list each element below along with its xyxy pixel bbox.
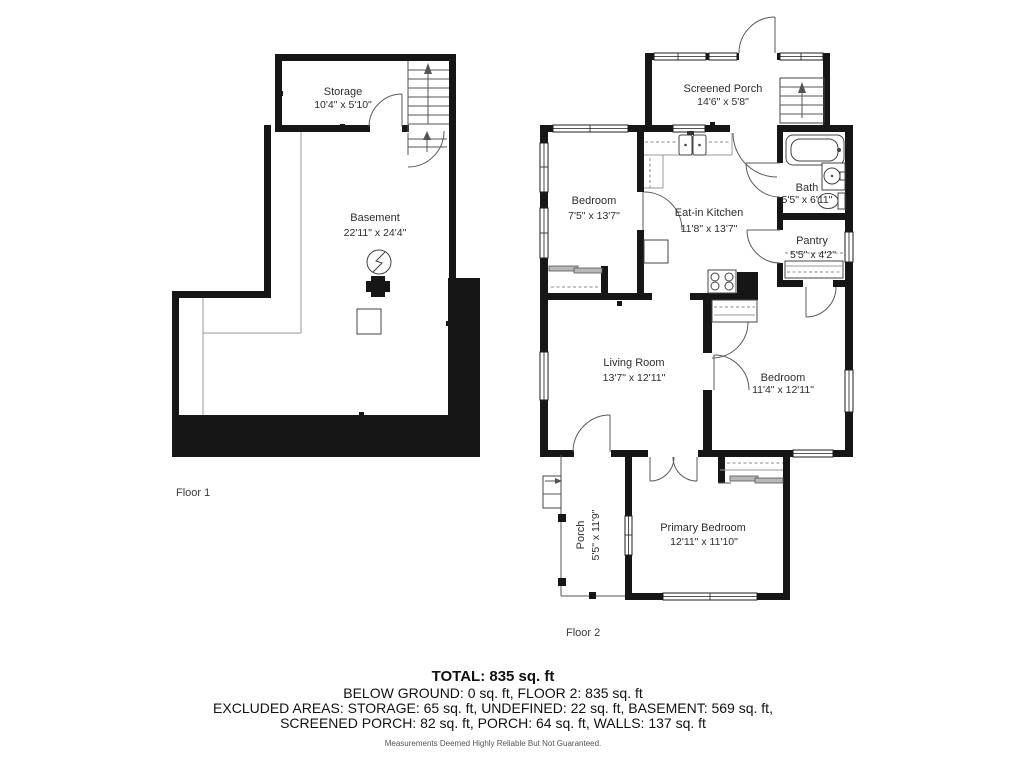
room-dims-kitchen: 11'8" x 13'7" [681, 223, 738, 235]
bedroom2-entry-door [806, 287, 836, 317]
room-dims-porch: 5'5" x 11'9" [590, 509, 602, 560]
bedroom1-closet [549, 266, 602, 287]
room-label-kitchen: Eat-in Kitchen [675, 207, 743, 219]
porch-entry-door [739, 17, 775, 53]
summary-line-3: EXCLUDED AREAS: STORAGE: 65 sq. ft, UNDE… [43, 701, 943, 716]
entry-steps [543, 476, 562, 508]
room-label-bedroom2: Bedroom [761, 372, 806, 384]
back-door [733, 133, 777, 177]
window [845, 232, 853, 262]
floor-plan-svg: Storage 10'4" x 5'10" Basement 22'11" x … [0, 0, 1024, 768]
room-label-basement: Basement [350, 212, 400, 224]
room-dims-pantry: 5'5" x 4'2" [790, 249, 836, 261]
floor2-label: Floor 2 [566, 627, 600, 639]
disclaimer: Measurements Deemed Highly Reliable But … [43, 739, 943, 748]
floor1-walls [172, 54, 480, 457]
floorplan-page: Storage 10'4" x 5'10" Basement 22'11" x … [0, 0, 1024, 768]
living-room-door [573, 415, 610, 452]
living-bedroom2-door [714, 355, 749, 390]
window [540, 143, 548, 192]
porch-stairs [780, 78, 824, 123]
floor1-plan: Storage 10'4" x 5'10" Basement 22'11" x … [172, 54, 480, 499]
room-label-porch: Porch [575, 521, 587, 550]
utility-box [357, 309, 381, 334]
room-label-bath: Bath [796, 182, 819, 194]
room-dims-bath: 5'5" x 6'11" [782, 194, 833, 206]
window [793, 450, 833, 457]
window [654, 53, 706, 60]
kitchen-sink-icon [679, 131, 706, 155]
total-area-line: TOTAL: 835 sq. ft [43, 668, 943, 686]
furnace-icon [366, 276, 390, 297]
room-dims-storage: 10'4" x 5'10" [314, 99, 372, 111]
bedroom2-closet-door [712, 322, 748, 358]
room-dims-screened-porch: 14'6" x 5'8" [697, 96, 749, 108]
bath-sink-icon [822, 163, 845, 190]
storage-door [369, 94, 402, 127]
window [625, 516, 632, 555]
window [553, 125, 628, 132]
basement-stairs [408, 61, 449, 167]
stove-icon [708, 270, 736, 293]
window [663, 593, 757, 600]
room-label-storage: Storage [324, 86, 363, 98]
fridge-icon [644, 240, 668, 263]
window [540, 352, 548, 400]
room-dims-primary: 12'11" x 11'10" [670, 536, 738, 548]
window [540, 208, 548, 258]
window [780, 53, 823, 60]
primary-closet [718, 463, 783, 483]
primary-double-doors [650, 457, 697, 481]
room-label-screened-porch: Screened Porch [684, 83, 763, 95]
lower-stairs-arrow [423, 131, 431, 152]
area-summary: TOTAL: 835 sq. ft BELOW GROUND: 0 sq. ft… [43, 668, 943, 748]
summary-line-2: BELOW GROUND: 0 sq. ft, FLOOR 2: 835 sq.… [43, 686, 943, 701]
door-openings [574, 52, 777, 458]
floor1-interior-lines [203, 132, 301, 415]
window [845, 370, 853, 412]
room-label-living: Living Room [603, 357, 664, 369]
bathtub-icon [786, 135, 844, 165]
pantry-door [747, 230, 780, 263]
room-label-pantry: Pantry [796, 235, 828, 247]
room-dims-basement: 22'11" x 24'4" [344, 227, 407, 239]
window [673, 125, 705, 132]
floor1-label: Floor 1 [176, 487, 210, 499]
water-heater-icon [367, 250, 391, 274]
floor1-wall-ticks [174, 91, 451, 417]
room-dims-bedroom2: 11'4" x 12'11" [752, 384, 814, 396]
room-dims-living: 13'7" x 12'11" [603, 372, 666, 384]
summary-line-4: SCREENED PORCH: 82 sq. ft, PORCH: 64 sq.… [43, 716, 943, 731]
room-dims-bedroom1: 7'5" x 13'7" [568, 210, 620, 222]
bedroom2-closet [712, 300, 757, 322]
floor2-plan: Screened Porch 14'6" x 5'8" Bedroom 7'5"… [540, 17, 853, 639]
room-label-primary: Primary Bedroom [660, 522, 746, 534]
room-label-bedroom1: Bedroom [572, 195, 617, 207]
window [709, 53, 737, 60]
